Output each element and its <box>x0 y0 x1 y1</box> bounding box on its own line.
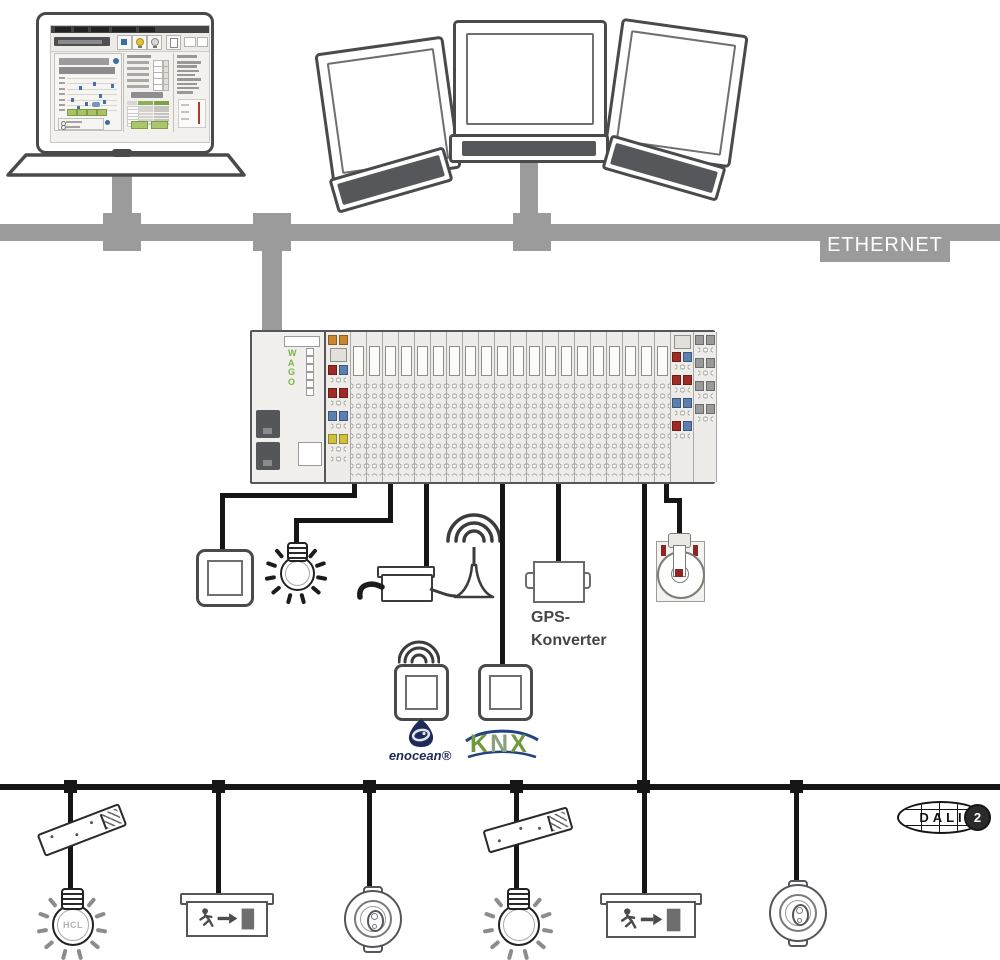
status-led <box>306 380 314 388</box>
data-marker <box>99 94 102 98</box>
data-marker <box>85 102 88 106</box>
exit-sign <box>606 901 696 938</box>
knx-letter-k: K <box>470 730 490 758</box>
list-row <box>177 70 199 73</box>
io-module <box>479 332 495 482</box>
wire-lamp <box>294 518 299 544</box>
menu-item <box>74 27 88 32</box>
toolbar-icon-tile <box>117 35 132 50</box>
current-sensor-core <box>675 569 683 577</box>
io-module-strip <box>326 332 717 482</box>
axis-label <box>59 99 65 101</box>
status-led <box>306 356 314 364</box>
status-led <box>306 348 314 356</box>
knx-letter-n: N <box>490 730 510 758</box>
info-icon <box>105 120 110 125</box>
io-module <box>527 332 543 482</box>
ethernet-junction-laptop <box>103 213 141 251</box>
io-module <box>655 332 671 482</box>
table-header <box>127 101 137 105</box>
dali2-logo: DALI 2 <box>897 799 993 835</box>
app-middle-panel <box>125 53 171 129</box>
io-module <box>543 332 559 482</box>
data-marker <box>71 98 74 102</box>
ethernet-label: ETHERNET <box>820 228 950 262</box>
green-bar <box>87 109 97 116</box>
app-toolbar <box>51 33 209 52</box>
laptop-stem <box>112 176 132 216</box>
laptop-screen-app <box>50 25 210 143</box>
plc-cpu-module: WAGO <box>252 332 326 482</box>
toolbar-field <box>184 37 196 47</box>
axis-label <box>59 104 65 106</box>
led-driver <box>37 803 128 857</box>
toolbar-bulb-on-tile <box>132 35 147 50</box>
green-bar <box>97 109 107 116</box>
ethernet-text: ETHERNET <box>827 234 943 257</box>
gps-label-line2: Konverter <box>531 629 607 652</box>
ceiling-presence-sensor <box>344 890 402 948</box>
form-label <box>127 67 149 70</box>
form-label <box>127 73 149 76</box>
dali-drop <box>794 788 799 884</box>
app-right-panel <box>175 53 207 129</box>
toolbar-bulb-off-tile <box>147 35 162 50</box>
menu-item <box>55 27 71 32</box>
knx-switch <box>478 664 533 721</box>
current-sensor-mark <box>661 545 666 556</box>
monitor-stem <box>520 156 538 214</box>
table-cell <box>138 109 153 112</box>
table-cell <box>154 109 169 112</box>
app-left-panel <box>54 53 122 131</box>
status-led <box>306 372 314 380</box>
wire-switch <box>220 493 357 498</box>
list-row <box>177 91 193 94</box>
laptop-hinge <box>112 149 132 157</box>
led-io-module <box>694 332 717 482</box>
keyboard-center <box>449 134 609 163</box>
io-module <box>415 332 431 482</box>
table-cell <box>154 106 169 109</box>
blue-bar <box>92 102 100 107</box>
rj45-port <box>256 410 280 438</box>
hcl-label: HCL <box>63 920 83 930</box>
dali-bus-line <box>0 784 1000 790</box>
wire-dali-feed <box>642 474 647 895</box>
controller-stem <box>262 248 282 332</box>
io-module <box>463 332 479 482</box>
data-marker <box>111 84 114 88</box>
wall-switch <box>196 549 254 607</box>
enocean-logo-icon <box>403 717 439 749</box>
io-module <box>623 332 639 482</box>
dali-drop <box>367 788 372 890</box>
toolbar-field <box>197 37 208 47</box>
io-module <box>559 332 575 482</box>
dali-junction <box>637 780 650 793</box>
io-module <box>399 332 415 482</box>
ok-button <box>131 121 148 129</box>
menu-item <box>91 27 109 32</box>
cpu-service-slot <box>298 442 322 466</box>
list-row <box>177 74 195 77</box>
wago-controller-rack: WAGO <box>250 330 715 484</box>
dali2-badge: 2 <box>964 804 991 831</box>
io-module <box>447 332 463 482</box>
axis-label <box>59 77 65 79</box>
data-marker <box>103 100 106 104</box>
rj45-port <box>256 442 280 470</box>
status-led <box>306 364 314 372</box>
hcl-lamp-globe: HCL <box>52 904 94 946</box>
enocean-logo-text: enocean® <box>386 748 454 763</box>
exit-sign <box>186 901 268 937</box>
gps-converter-box <box>533 561 585 603</box>
io-module <box>591 332 607 482</box>
knx-letter-x: X <box>510 730 529 758</box>
io-module <box>639 332 655 482</box>
info-icon <box>113 58 119 64</box>
form-stepper <box>163 84 169 91</box>
enocean-wireless-switch <box>394 664 449 721</box>
axis-label <box>59 93 65 95</box>
io-module <box>511 332 527 482</box>
data-marker <box>93 82 96 86</box>
hcl-lamp-cap <box>61 888 84 910</box>
lamp-cap <box>287 542 308 562</box>
wire-gps <box>556 474 561 563</box>
mini-plot <box>178 99 206 128</box>
ceiling-presence-sensor <box>769 884 827 942</box>
form-input <box>153 84 163 91</box>
cancel-button <box>151 121 168 129</box>
wago-logo: WAGO <box>288 349 298 387</box>
tool-icon <box>121 39 127 45</box>
gps-label-line1: GPS- <box>531 606 607 629</box>
wire-switch <box>220 493 225 551</box>
monitor-center <box>453 20 607 138</box>
io-module <box>495 332 511 482</box>
io-module <box>351 332 367 482</box>
io-module <box>367 332 383 482</box>
form-label <box>127 79 149 82</box>
list-row <box>177 83 197 86</box>
axis-label <box>59 82 65 84</box>
table-cell <box>138 106 153 109</box>
green-bar <box>67 109 77 116</box>
table-cell <box>138 116 153 119</box>
lamp-cap <box>507 888 530 910</box>
lamp-globe <box>498 904 540 946</box>
led-io-module <box>671 332 694 482</box>
status-led <box>306 388 314 396</box>
table-cell <box>154 113 169 116</box>
table-header <box>154 101 169 105</box>
gps-converter-label: GPS- Konverter <box>531 606 607 652</box>
table-cell <box>154 116 169 119</box>
knx-logo: KNX <box>464 726 540 762</box>
form-label <box>127 61 149 64</box>
list-row <box>177 65 197 68</box>
io-module <box>431 332 447 482</box>
option-box <box>58 118 104 130</box>
menu-item <box>112 27 136 32</box>
wireless-waves-icon <box>398 632 440 664</box>
system-diagram: ETHERNET <box>0 0 1000 960</box>
table-cell <box>138 113 153 116</box>
dali-drop <box>216 788 221 895</box>
io-module <box>607 332 623 482</box>
led-io-module <box>326 332 351 482</box>
green-bar <box>77 109 87 116</box>
ethernet-junction-controller <box>253 213 291 251</box>
list-row <box>177 78 201 81</box>
form-label <box>127 85 149 88</box>
list-row <box>177 61 201 64</box>
toolbar-main-button <box>54 37 110 46</box>
io-module <box>575 332 591 482</box>
menu-item <box>139 27 155 32</box>
table-header <box>138 101 153 105</box>
schedule-chart <box>59 78 117 116</box>
toolbar-page-tile <box>166 35 181 50</box>
led-driver <box>482 806 573 853</box>
axis-label <box>59 109 65 111</box>
list-row <box>177 87 199 90</box>
axis-label <box>59 88 65 90</box>
antenna-icon <box>350 505 500 605</box>
data-marker <box>79 86 82 90</box>
wire-knx <box>500 474 505 666</box>
io-module <box>383 332 399 482</box>
ethernet-junction-monitors <box>513 213 551 251</box>
app-menubar <box>51 26 209 33</box>
